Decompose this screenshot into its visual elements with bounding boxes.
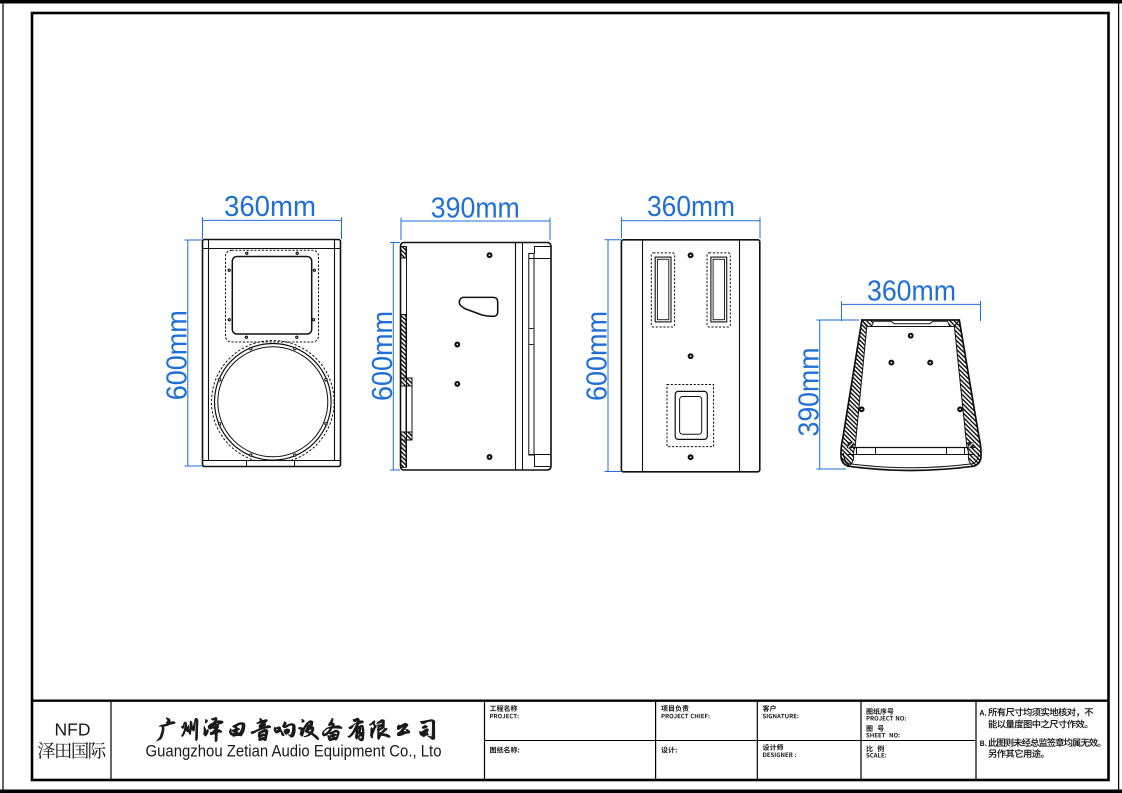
svg-text:390mm: 390mm xyxy=(793,348,825,437)
svg-text:360mm: 360mm xyxy=(867,276,956,308)
svg-text:360mm: 360mm xyxy=(224,191,316,223)
svg-text:390mm: 390mm xyxy=(431,193,520,225)
svg-text:360mm: 360mm xyxy=(647,191,735,223)
svg-text:600mm: 600mm xyxy=(162,310,194,400)
svg-text:NFD: NFD xyxy=(55,720,91,740)
svg-text:600mm: 600mm xyxy=(582,311,614,401)
svg-text:600mm: 600mm xyxy=(367,311,399,401)
svg-text:Guangzhou Zetian Audio Equipme: Guangzhou Zetian Audio Equipment Co., Lt… xyxy=(146,742,442,761)
